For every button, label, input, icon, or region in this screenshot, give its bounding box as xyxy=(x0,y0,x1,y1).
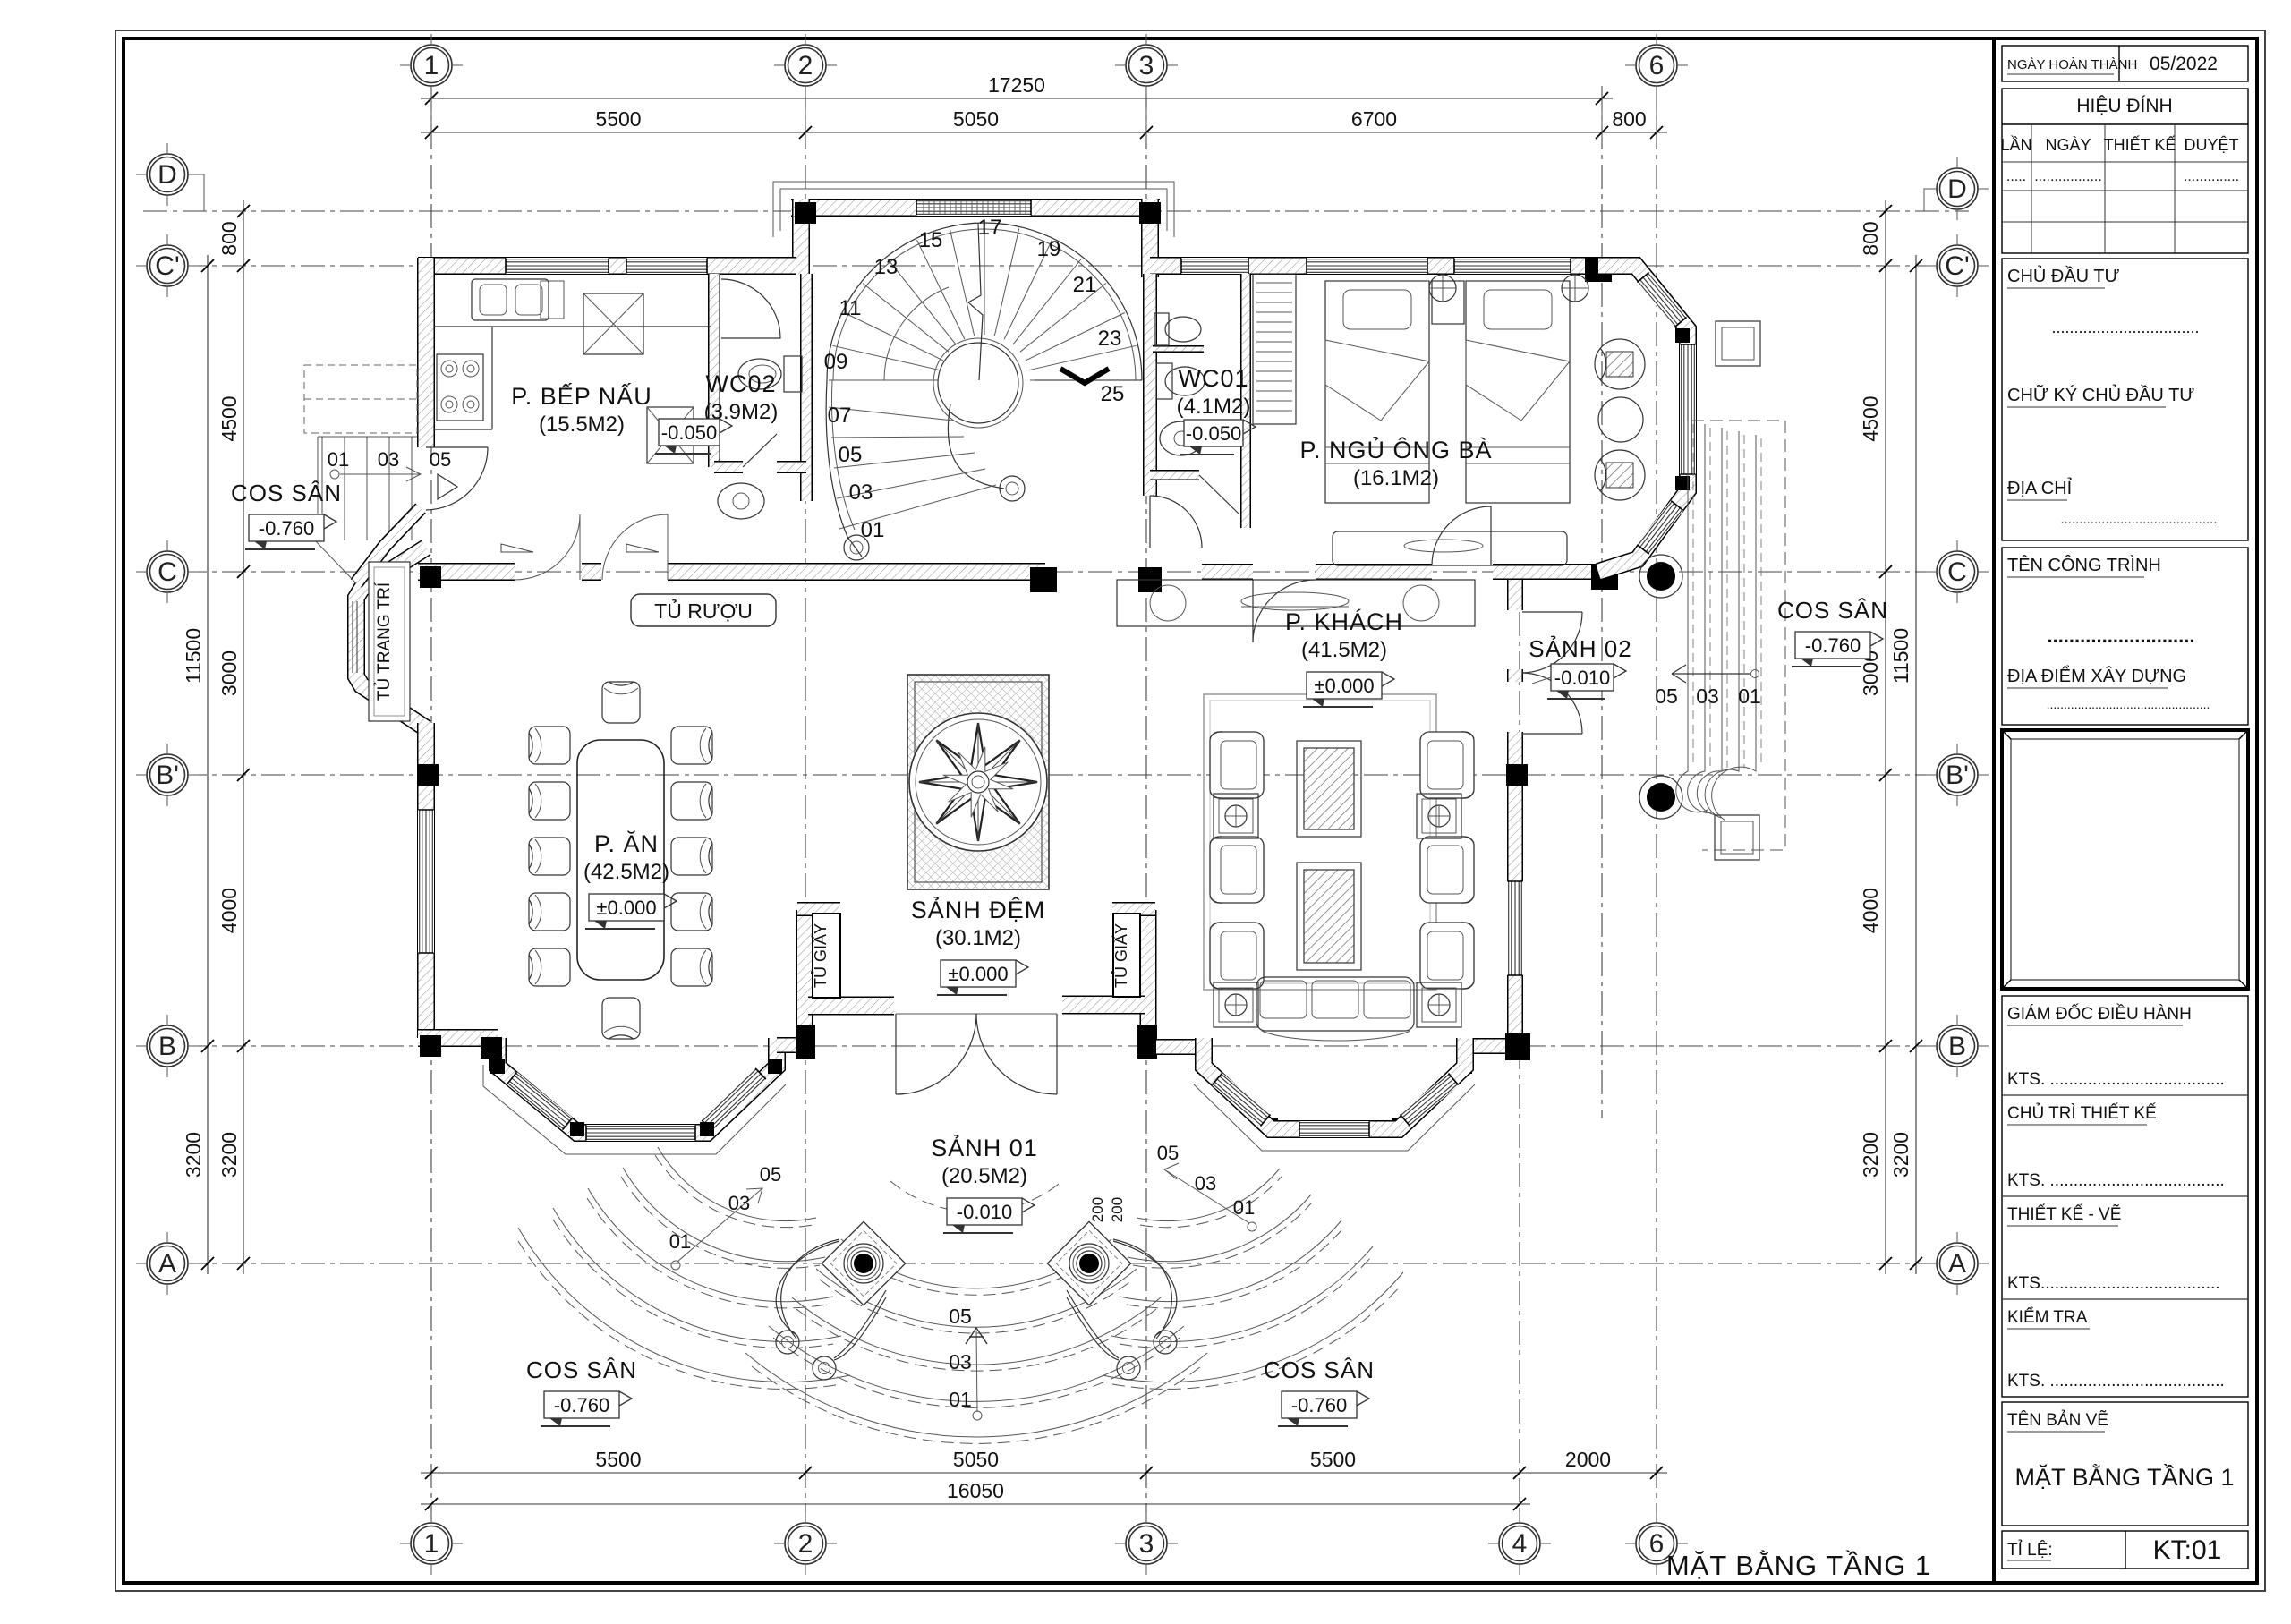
svg-text:16050: 16050 xyxy=(947,1479,1004,1502)
svg-text:-0.010: -0.010 xyxy=(1554,667,1610,689)
svg-text:3200: 3200 xyxy=(1859,1132,1882,1178)
svg-text:D: D xyxy=(158,160,177,190)
svg-text:17: 17 xyxy=(978,216,1002,240)
svg-text:A: A xyxy=(158,1249,176,1279)
svg-text:TỦ GIẤY: TỦ GIẤY xyxy=(811,923,830,988)
svg-text:.................: ................. xyxy=(2034,169,2102,184)
svg-text:11500: 11500 xyxy=(182,628,205,684)
svg-text:COS SÂN: COS SÂN xyxy=(1777,597,1888,624)
svg-text:(16.1M2): (16.1M2) xyxy=(1353,466,1439,490)
svg-text:B: B xyxy=(158,1032,176,1061)
svg-text:1: 1 xyxy=(424,1529,439,1559)
svg-text:-0.760: -0.760 xyxy=(554,1394,609,1416)
svg-text:25: 25 xyxy=(1101,382,1125,406)
svg-text:(42.5M2): (42.5M2) xyxy=(583,860,669,884)
svg-text:B': B' xyxy=(1946,761,1969,790)
svg-text:DUYỆT: DUYỆT xyxy=(2184,136,2238,154)
svg-text:(30.1M2): (30.1M2) xyxy=(935,926,1021,950)
svg-text:NGÀY: NGÀY xyxy=(2045,136,2091,154)
svg-text:05: 05 xyxy=(1157,1142,1179,1164)
svg-text:(15.5M2): (15.5M2) xyxy=(539,412,625,437)
svg-text:-0.760: -0.760 xyxy=(1805,634,1861,657)
svg-text:A: A xyxy=(1948,1249,1966,1279)
svg-text:11: 11 xyxy=(839,296,862,320)
svg-text:C': C' xyxy=(1945,251,1969,281)
svg-text:07: 07 xyxy=(828,404,852,428)
svg-text:P. BẾP NẤU: P. BẾP NẤU xyxy=(511,382,652,410)
svg-text:4000: 4000 xyxy=(217,888,241,933)
svg-text:THIẾT KẾ - VẼ: THIẾT KẾ - VẼ xyxy=(2007,1204,2121,1224)
svg-text:13: 13 xyxy=(874,255,899,279)
svg-text:COS SÂN: COS SÂN xyxy=(231,480,342,506)
svg-text:2: 2 xyxy=(798,1529,813,1559)
svg-text:5500: 5500 xyxy=(595,1448,641,1471)
svg-text:ĐỊA CHỈ: ĐỊA CHỈ xyxy=(2007,478,2073,498)
svg-text:KTS...........................: KTS.....................................… xyxy=(2007,1274,2220,1293)
svg-text:6: 6 xyxy=(1649,1529,1665,1559)
svg-text:CHỦ ĐẦU TƯ: CHỦ ĐẦU TƯ xyxy=(2007,265,2120,286)
svg-text:SẢNH 02: SẢNH 02 xyxy=(1529,635,1631,662)
svg-text:03: 03 xyxy=(378,448,399,471)
svg-text:-0.050: -0.050 xyxy=(1186,422,1241,445)
svg-text:15: 15 xyxy=(919,228,943,252)
svg-text:05: 05 xyxy=(1655,684,1678,708)
svg-text:05: 05 xyxy=(430,448,451,471)
svg-text:KIỂM TRA: KIỂM TRA xyxy=(2007,1307,2088,1327)
svg-text:2: 2 xyxy=(798,51,813,81)
svg-text:-0.010: -0.010 xyxy=(957,1201,1012,1223)
svg-text:800: 800 xyxy=(1612,107,1646,131)
svg-text:200: 200 xyxy=(1089,1197,1106,1222)
svg-text:01: 01 xyxy=(1233,1196,1255,1219)
svg-text:4000: 4000 xyxy=(1859,888,1882,933)
svg-text:NGÀY HOÀN THÀNH: NGÀY HOÀN THÀNH xyxy=(2007,57,2137,72)
svg-text:3200: 3200 xyxy=(1889,1132,1912,1178)
svg-text:B': B' xyxy=(156,761,179,790)
svg-text:800: 800 xyxy=(217,221,241,255)
svg-text:21: 21 xyxy=(1073,273,1097,297)
svg-text:MẶT BẰNG TẦNG 1: MẶT BẰNG TẦNG 1 xyxy=(2014,1463,2234,1491)
svg-text:C: C xyxy=(1947,557,1967,587)
svg-text:09: 09 xyxy=(824,350,848,374)
svg-text:800: 800 xyxy=(1859,221,1882,255)
svg-text:01: 01 xyxy=(328,448,349,471)
svg-text:CHỦ TRÌ THIẾT KẾ: CHỦ TRÌ THIẾT KẾ xyxy=(2007,1103,2157,1123)
svg-text:..............................: ................................. xyxy=(2051,319,2199,336)
svg-text:-0.760: -0.760 xyxy=(1291,1394,1347,1416)
svg-text:6700: 6700 xyxy=(1351,107,1397,131)
svg-text:4500: 4500 xyxy=(1859,395,1882,441)
svg-text:GIÁM ĐỐC ĐIỀU HÀNH: GIÁM ĐỐC ĐIỀU HÀNH xyxy=(2007,1004,2192,1024)
svg-text:19: 19 xyxy=(1037,237,1061,261)
svg-text:05: 05 xyxy=(839,443,863,467)
svg-text:THIẾT KẾ: THIẾT KẾ xyxy=(2104,135,2176,154)
svg-text:P. NGỦ ÔNG BÀ: P. NGỦ ÔNG BÀ xyxy=(1299,435,1492,463)
svg-text:±0.000: ±0.000 xyxy=(596,897,656,919)
svg-text:..............................: ........................................… xyxy=(2060,512,2217,527)
svg-text:01: 01 xyxy=(949,1388,972,1411)
svg-text:TÊN CÔNG TRÌNH: TÊN CÔNG TRÌNH xyxy=(2007,555,2161,575)
svg-text:03: 03 xyxy=(1696,684,1719,708)
svg-text:(20.5M2): (20.5M2) xyxy=(941,1164,1027,1188)
svg-text:03: 03 xyxy=(849,480,873,505)
svg-text:TỦ RƯỢU: TỦ RƯỢU xyxy=(654,598,753,623)
svg-text:MẶT BẰNG TẦNG 1: MẶT BẰNG TẦNG 1 xyxy=(1666,1550,1931,1581)
svg-text:CHỮ KÝ CHỦ ĐẦU TƯ: CHỮ KÝ CHỦ ĐẦU TƯ xyxy=(2007,384,2194,405)
svg-text:(4.1M2): (4.1M2) xyxy=(1177,395,1251,419)
svg-text:B: B xyxy=(1948,1032,1966,1061)
svg-text:-0.050: -0.050 xyxy=(661,421,717,444)
svg-text:TỦ TRANG TRÍ: TỦ TRANG TRÍ xyxy=(374,582,394,701)
svg-text:LẦN: LẦN xyxy=(2000,135,2031,154)
svg-text:03: 03 xyxy=(728,1192,750,1214)
svg-text:..............................: ........................................… xyxy=(2047,697,2210,711)
svg-text:±0.000: ±0.000 xyxy=(1314,675,1374,697)
svg-text:KTS. .........................: KTS. ...................................… xyxy=(2007,1372,2225,1390)
svg-text:05/2022: 05/2022 xyxy=(2150,54,2218,74)
svg-text:3000: 3000 xyxy=(217,650,241,696)
svg-text:17250: 17250 xyxy=(988,73,1045,97)
svg-text:3200: 3200 xyxy=(217,1132,241,1178)
svg-text:03: 03 xyxy=(949,1350,972,1373)
svg-text:5050: 5050 xyxy=(953,107,999,131)
svg-text:.....: ..... xyxy=(2006,169,2026,184)
svg-text:5500: 5500 xyxy=(1310,1448,1356,1471)
svg-text:TỈ LỆ:: TỈ LỆ: xyxy=(2007,1540,2053,1560)
svg-text:3200: 3200 xyxy=(182,1132,205,1178)
svg-text:05: 05 xyxy=(760,1163,781,1186)
svg-text:11500: 11500 xyxy=(1889,628,1912,684)
svg-text:(41.5M2): (41.5M2) xyxy=(1301,638,1387,662)
svg-text:1: 1 xyxy=(424,51,439,81)
svg-text:4500: 4500 xyxy=(217,395,241,441)
svg-text:03: 03 xyxy=(1195,1172,1216,1195)
svg-text:HIỆU ĐÍNH: HIỆU ĐÍNH xyxy=(2076,96,2172,116)
svg-text:C: C xyxy=(158,557,177,587)
svg-text:COS SÂN: COS SÂN xyxy=(1264,1356,1375,1383)
svg-text:COS SÂN: COS SÂN xyxy=(526,1356,637,1383)
svg-text:KTS. .........................: KTS. ...................................… xyxy=(2007,1070,2225,1089)
svg-text:01: 01 xyxy=(1738,684,1761,708)
svg-text:SẢNH 01: SẢNH 01 xyxy=(931,1133,1038,1161)
svg-text:±0.000: ±0.000 xyxy=(948,963,1008,985)
svg-text:..............: .............. xyxy=(2184,169,2239,184)
svg-text:5050: 5050 xyxy=(953,1448,999,1471)
svg-text:2000: 2000 xyxy=(1565,1448,1611,1471)
svg-text:3: 3 xyxy=(1139,1529,1154,1559)
svg-text:KTS. .........................: KTS. ...................................… xyxy=(2007,1171,2225,1190)
svg-text:...........................: ........................... xyxy=(2047,625,2194,647)
svg-text:01: 01 xyxy=(861,518,885,542)
svg-text:TỦ GIẤY: TỦ GIẤY xyxy=(1111,923,1130,988)
svg-text:4: 4 xyxy=(1512,1529,1528,1559)
svg-text:SẢNH ĐỆM: SẢNH ĐỆM xyxy=(911,895,1046,923)
svg-text:KT:01: KT:01 xyxy=(2153,1535,2222,1565)
svg-text:5500: 5500 xyxy=(595,107,641,131)
svg-text:P. KHÁCH: P. KHÁCH xyxy=(1285,608,1403,635)
svg-text:ĐỊA ĐIỂM XÂY DỰNG: ĐỊA ĐIỂM XÂY DỰNG xyxy=(2007,666,2186,686)
svg-text:D: D xyxy=(1947,174,1967,204)
svg-text:P. ĂN: P. ĂN xyxy=(594,830,659,857)
svg-text:23: 23 xyxy=(1098,327,1122,351)
svg-text:C': C' xyxy=(155,251,179,281)
svg-text:200: 200 xyxy=(1109,1197,1126,1222)
svg-text:01: 01 xyxy=(669,1230,691,1253)
svg-text:TÊN BẢN VẼ: TÊN BẢN VẼ xyxy=(2007,1410,2108,1430)
svg-text:WC01: WC01 xyxy=(1178,365,1248,392)
svg-text:05: 05 xyxy=(949,1305,972,1328)
svg-text:-0.760: -0.760 xyxy=(259,517,314,540)
svg-text:3: 3 xyxy=(1139,51,1154,81)
svg-text:WC02: WC02 xyxy=(705,370,776,397)
svg-text:6: 6 xyxy=(1649,51,1665,81)
